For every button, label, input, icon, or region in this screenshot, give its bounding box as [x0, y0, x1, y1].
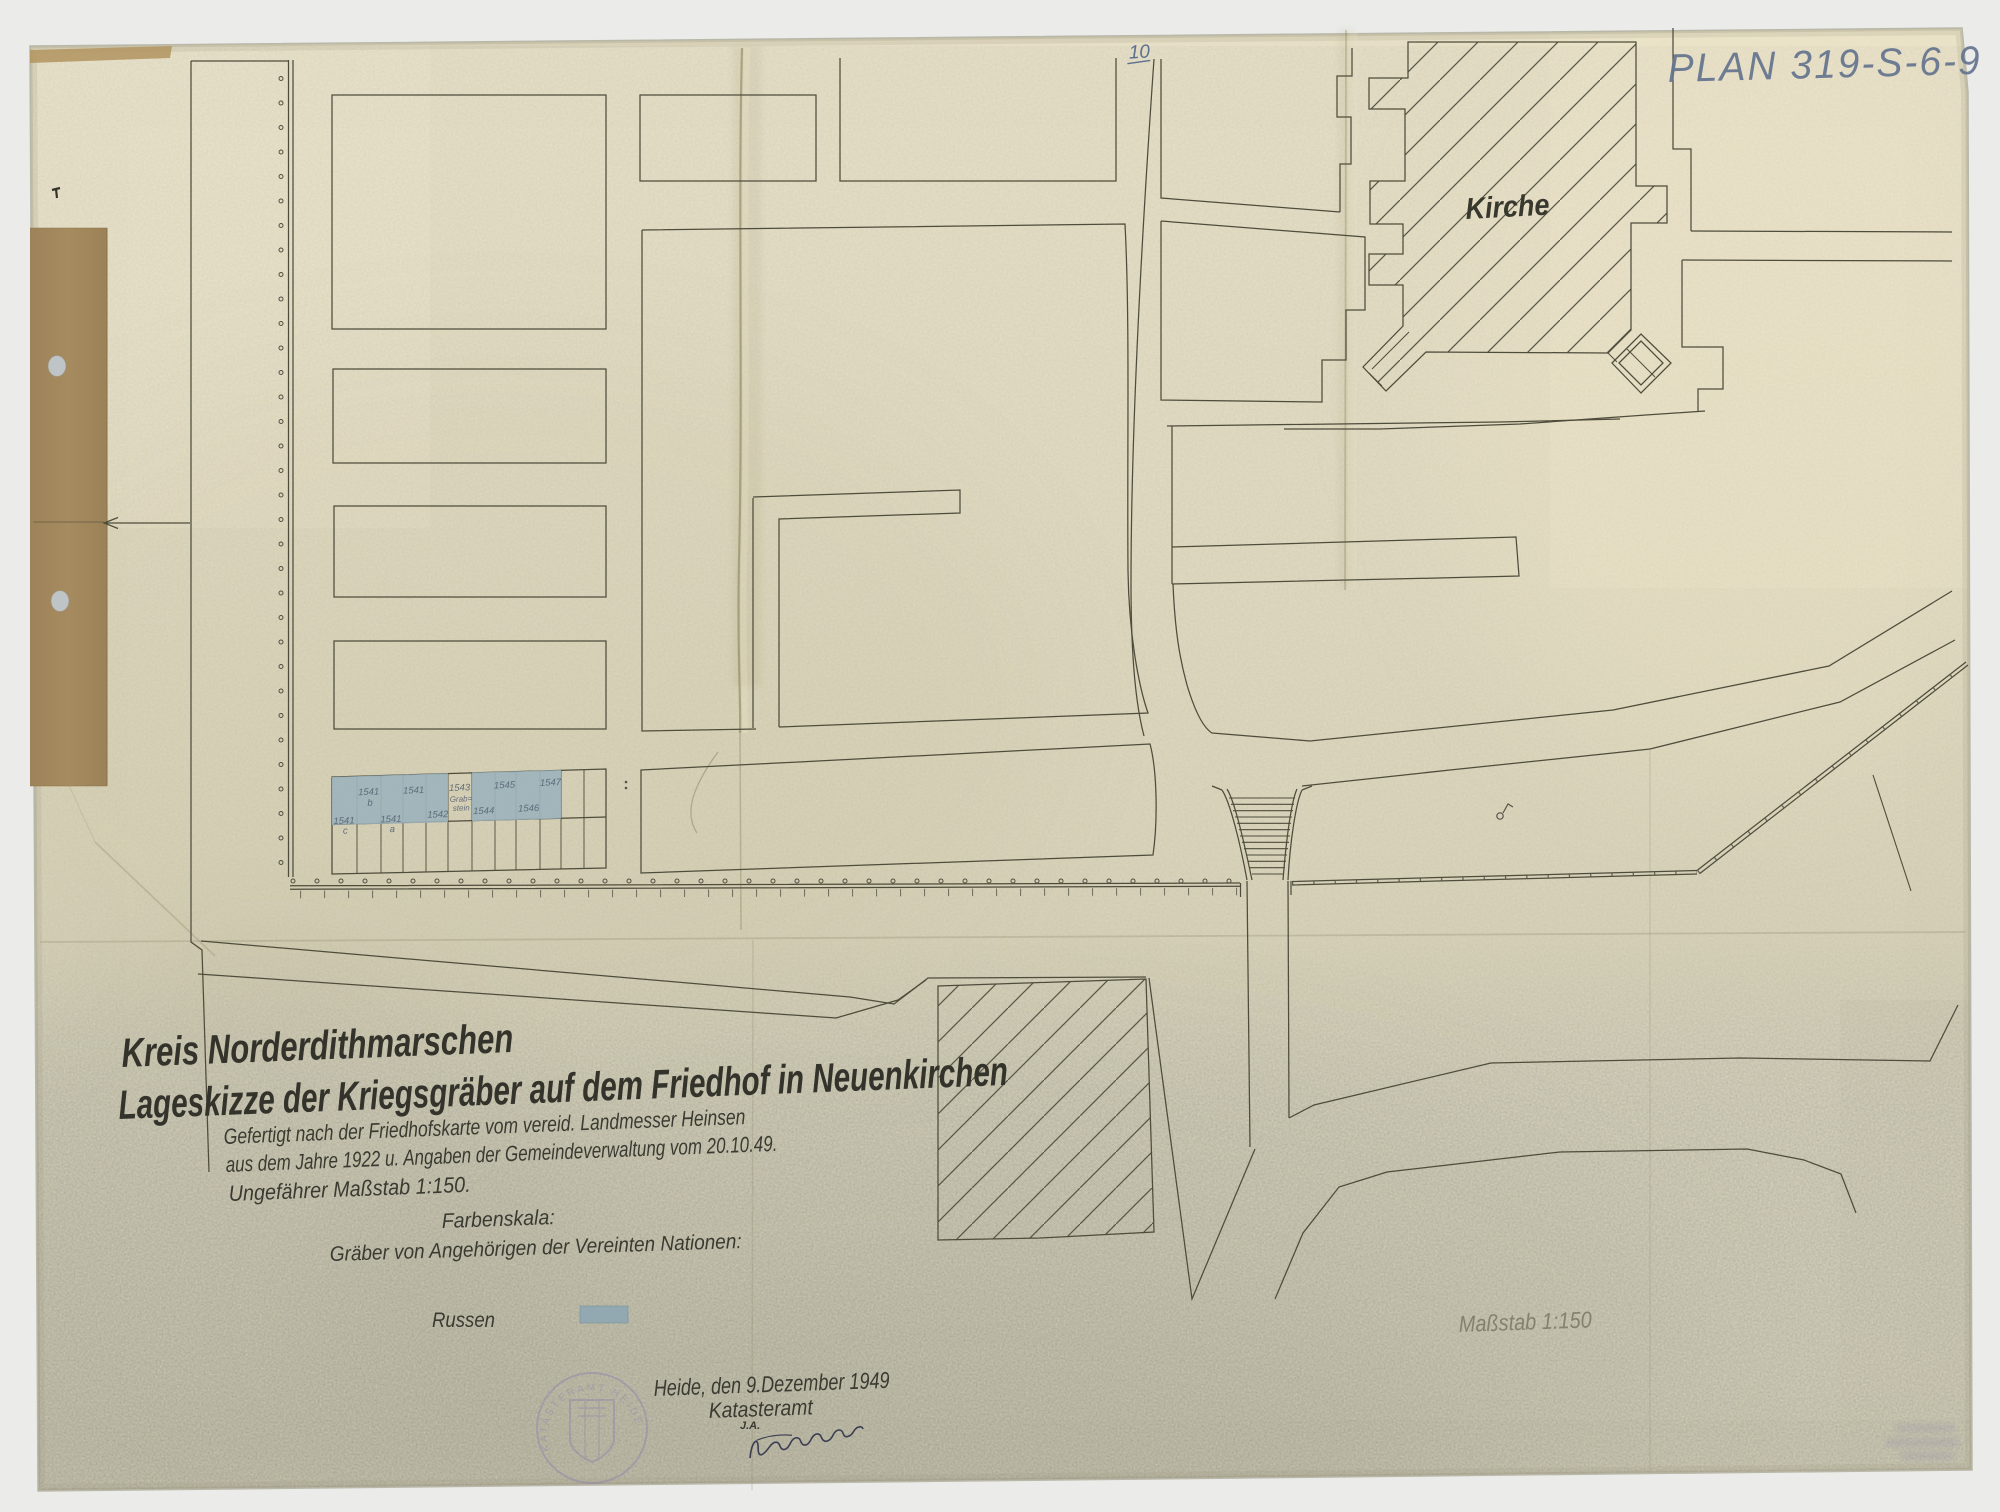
svg-text:PLAN 319-S-6-9: PLAN 319-S-6-9: [1667, 39, 1982, 91]
svg-text:1546: 1546: [518, 803, 540, 815]
svg-text:c: c: [343, 826, 348, 837]
svg-text:1543: 1543: [449, 782, 471, 794]
svg-text:1541: 1541: [403, 785, 425, 797]
svg-text:Russen: Russen: [432, 1309, 495, 1332]
svg-text:b: b: [367, 798, 373, 809]
svg-text:Kirche: Kirche: [1465, 189, 1551, 226]
svg-text:Katasteramt: Katasteramt: [708, 1394, 814, 1423]
svg-text:a: a: [389, 824, 395, 835]
svg-text:1541: 1541: [358, 786, 380, 798]
svg-text:J.A.: J.A.: [740, 1420, 760, 1432]
svg-text:stein: stein: [453, 803, 471, 813]
svg-text:1542: 1542: [427, 809, 449, 821]
svg-text:Farbenskala:: Farbenskala:: [441, 1206, 555, 1233]
svg-text:1545: 1545: [494, 780, 516, 792]
svg-text:1544: 1544: [473, 805, 495, 817]
svg-text:1547: 1547: [540, 777, 562, 789]
svg-text:Maßstab 1:150: Maßstab 1:150: [1458, 1306, 1592, 1337]
